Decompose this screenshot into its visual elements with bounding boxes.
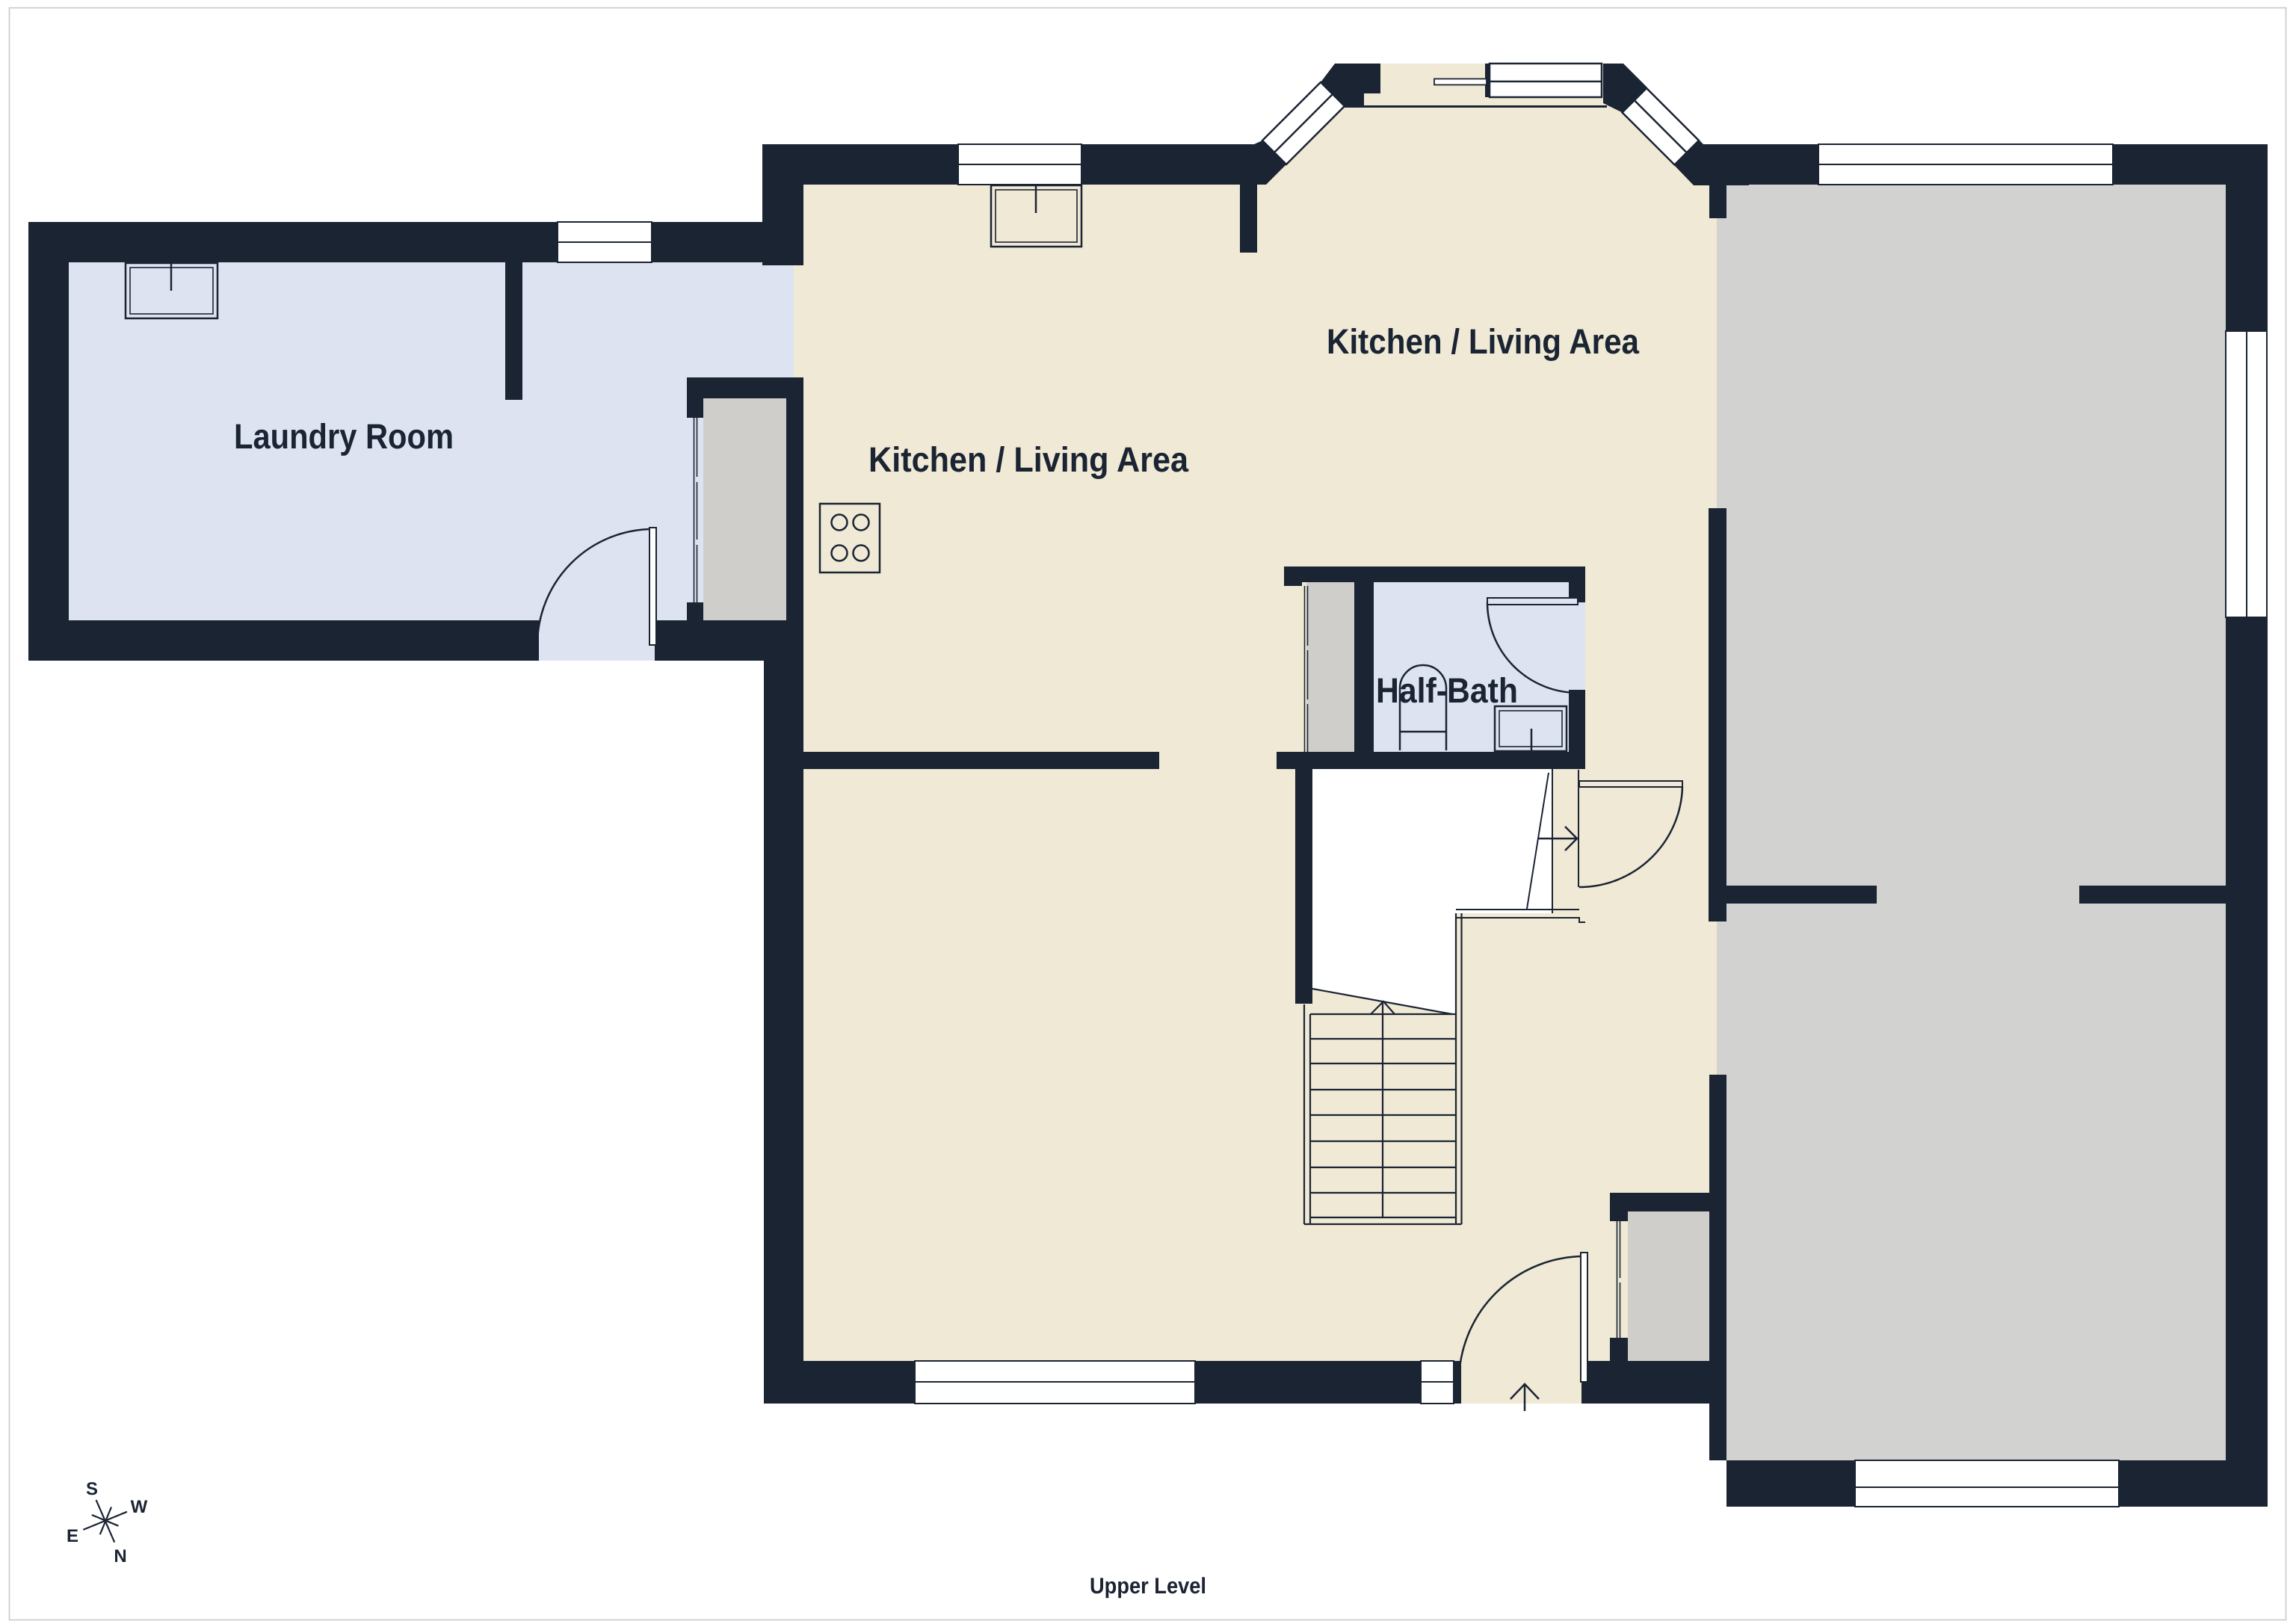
svg-text:N: N bbox=[114, 1546, 126, 1566]
svg-text:Kitchen / Living Area: Kitchen / Living Area bbox=[868, 439, 1189, 479]
svg-text:E: E bbox=[67, 1526, 78, 1546]
svg-text:Kitchen / Living Area: Kitchen / Living Area bbox=[1327, 321, 1640, 361]
svg-text:Half-Bath: Half-Bath bbox=[1376, 670, 1518, 710]
svg-text:S: S bbox=[86, 1479, 98, 1499]
svg-text:Laundry Room: Laundry Room bbox=[234, 416, 454, 456]
svg-text:Upper Level: Upper Level bbox=[1090, 1574, 1206, 1599]
svg-text:W: W bbox=[131, 1497, 148, 1517]
